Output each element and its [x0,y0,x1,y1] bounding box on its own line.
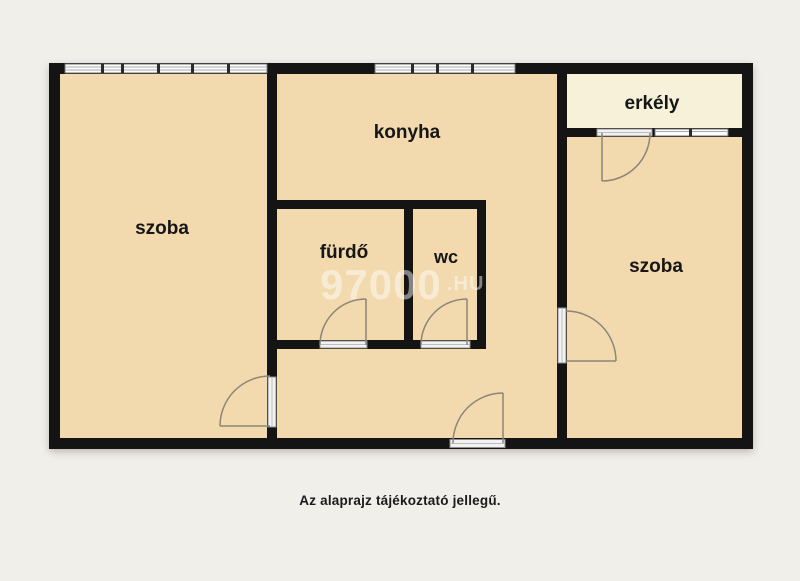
floor-plan-page: 97000 .HU szoba konyha fürdő wc erkély s… [0,0,800,581]
door-threshold-entrance [450,440,505,448]
wall-outer-right [742,63,753,449]
wall-hall-room-right [557,63,567,449]
room-label-room-right: szoba [629,256,683,277]
room-label-wc: wc [433,247,458,267]
room-label-room-left: szoba [135,218,189,239]
watermark-number: 97000 [320,261,442,308]
wall-outer-bottom [49,438,753,449]
room-label-balcony: erkély [625,93,680,114]
door-threshold-room-right [558,308,566,363]
room-label-bathroom: fürdő [320,242,369,263]
wall-outer-left [49,63,60,449]
door-threshold-bathroom [320,341,367,348]
door-threshold-balcony [597,129,652,136]
window-symbol-room-left [65,64,267,73]
window-symbol-kitchen [375,64,515,73]
wall-bath-wc-top [267,200,486,209]
window-symbol-balcony [655,129,728,136]
room-label-kitchen: konyha [374,122,441,143]
door-threshold-wc [421,341,470,348]
caption-text: Az alaprajz tájékoztató jellegű. [0,493,800,508]
door-threshold-room-left [268,377,276,427]
watermark-suffix: .HU [447,273,484,295]
